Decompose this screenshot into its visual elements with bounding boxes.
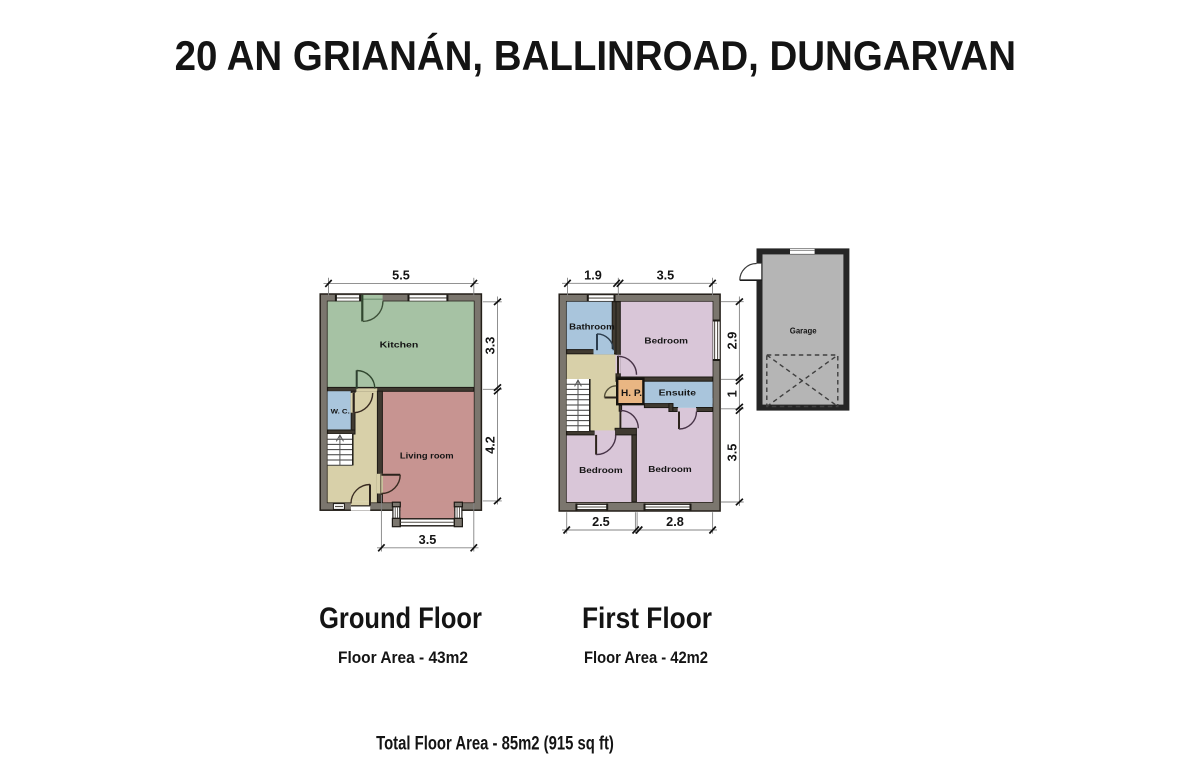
svg-text:2.8: 2.8 [666,515,684,529]
svg-text:3.3: 3.3 [484,337,498,355]
svg-text:1.9: 1.9 [584,269,602,283]
svg-text:Floor Area - 43m2: Floor Area - 43m2 [338,649,468,667]
svg-text:3.5: 3.5 [419,533,437,547]
svg-text:Bedroom: Bedroom [579,466,623,475]
svg-text:Ensuite: Ensuite [659,388,697,397]
svg-text:2.5: 2.5 [592,515,610,529]
svg-text:4.2: 4.2 [484,436,498,454]
svg-text:H. P.: H. P. [621,388,642,398]
svg-text:Bedroom: Bedroom [648,465,692,474]
svg-text:Bathroom: Bathroom [569,323,615,332]
svg-text:Kitchen: Kitchen [380,341,419,350]
svg-text:Ground Floor: Ground Floor [319,602,482,635]
svg-text:Floor Area - 42m2: Floor Area - 42m2 [584,649,708,667]
svg-text:3.5: 3.5 [657,269,675,283]
svg-text:W. C.: W. C. [331,408,350,415]
svg-text:1: 1 [725,390,739,397]
svg-text:Garage: Garage [790,326,818,335]
svg-text:Living room: Living room [400,451,454,460]
svg-text:5.5: 5.5 [392,269,410,283]
svg-text:3.5: 3.5 [725,444,739,462]
svg-text:2.9: 2.9 [725,332,739,350]
svg-text:Bedroom: Bedroom [644,336,688,345]
svg-text:First Floor: First Floor [582,602,712,635]
svg-text:20 AN GRIANÁN, BALLINROAD, DUN: 20 AN GRIANÁN, BALLINROAD, DUNGARVAN [175,32,1016,79]
svg-text:Total Floor Area - 85m2 (915 s: Total Floor Area - 85m2 (915 sq ft) [376,734,614,755]
